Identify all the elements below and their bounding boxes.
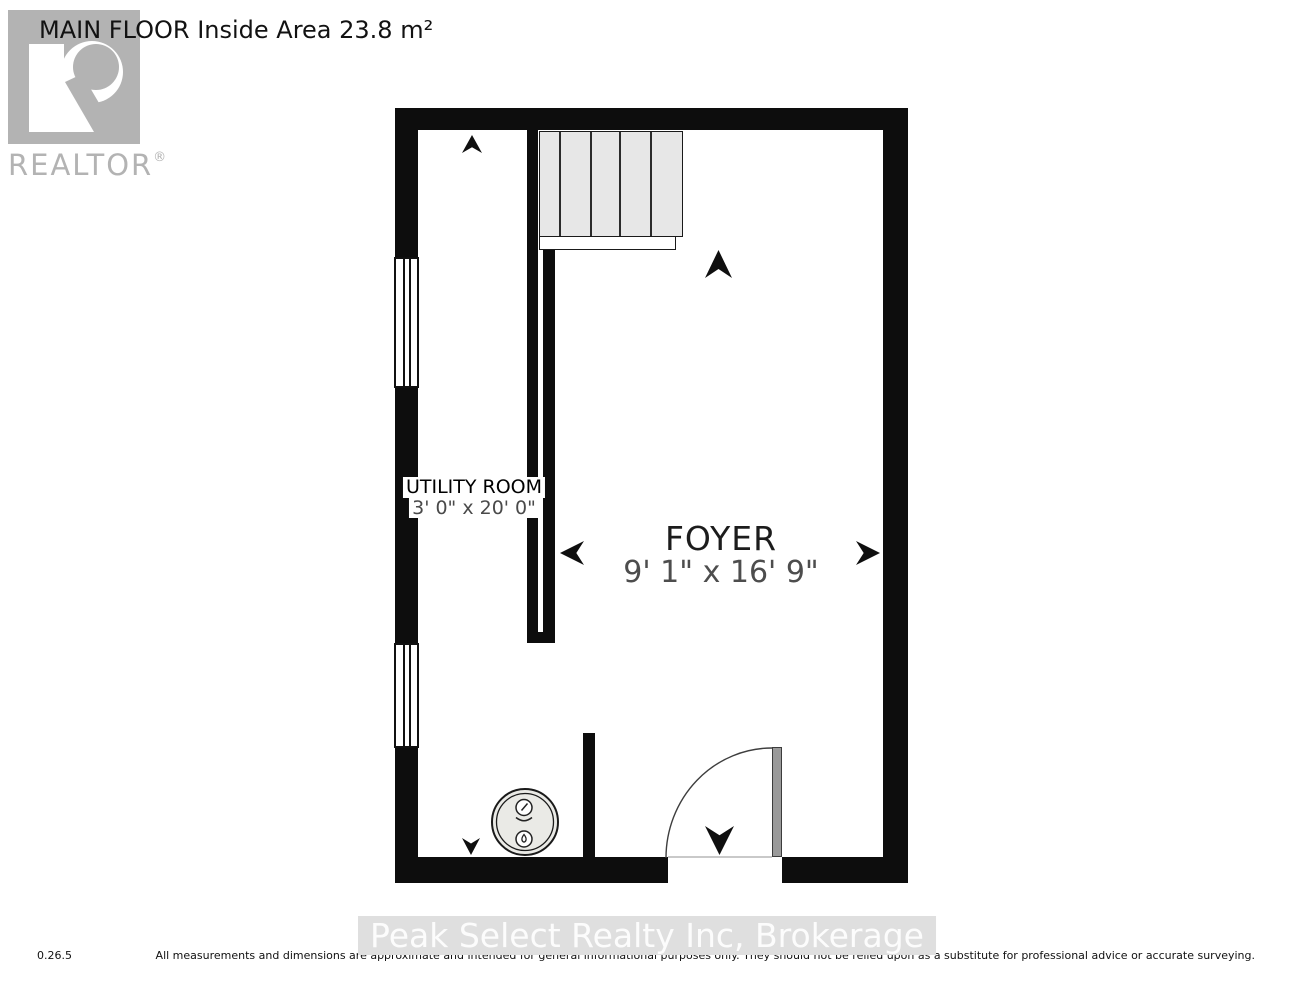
north-arrow-icon — [705, 250, 732, 278]
up-arrow-icon — [462, 135, 482, 153]
window-mullion — [403, 645, 405, 746]
floorplan-page: REALTOR® MAIN FLOOR Inside Area 23.8 m² — [0, 0, 1294, 1000]
stair-tread-divider — [590, 132, 592, 236]
wall-left-lower — [395, 748, 418, 883]
window-upper — [394, 257, 419, 388]
foyer-dimensions: 9' 1" x 16' 9" — [623, 557, 818, 589]
right-arrow-icon — [856, 541, 880, 565]
realtor-wordmark: REALTOR® — [8, 148, 158, 182]
foyer-label: FOYER 9' 1" x 16' 9" — [623, 522, 818, 589]
wall-bottom-left-segment — [395, 857, 668, 883]
door-leaf — [772, 747, 782, 857]
stair-tread-divider — [559, 132, 561, 236]
interior-wall-end-cap — [527, 632, 555, 643]
left-arrow-icon — [560, 541, 584, 565]
window-mullion — [403, 259, 405, 386]
brokerage-watermark: Peak Select Realty Inc, Brokerage — [358, 916, 936, 955]
utility-room-name: UTILITY ROOM — [403, 477, 545, 498]
version-text: 0.26.5 — [37, 949, 72, 962]
utility-room-dimensions: 3' 0" x 20' 0" — [409, 498, 539, 519]
interior-wall-right-leaf — [543, 248, 555, 632]
down-arrow-icon — [462, 838, 480, 855]
stairs — [539, 131, 683, 237]
wall-left-upper — [395, 108, 418, 257]
foyer-name: FOYER — [623, 522, 818, 557]
entry-wall-stub — [583, 733, 595, 857]
stair-landing — [539, 236, 676, 250]
wall-right — [883, 108, 908, 883]
page-title: MAIN FLOOR Inside Area 23.8 m² — [39, 16, 433, 44]
water-heater-icon — [490, 787, 562, 859]
interior-wall-left-leaf — [527, 130, 538, 643]
window-mullion — [409, 645, 411, 746]
wall-top — [395, 108, 908, 130]
window-lower — [394, 643, 419, 748]
registered-mark: ® — [153, 150, 166, 165]
window-mullion — [409, 259, 411, 386]
stair-tread-divider — [650, 132, 652, 236]
utility-room-label: UTILITY ROOM 3' 0" x 20' 0" — [403, 477, 545, 518]
wall-bottom-right-segment — [782, 857, 908, 883]
stair-tread-divider — [619, 132, 621, 236]
realtor-wordmark-text: REALTOR — [8, 148, 153, 182]
